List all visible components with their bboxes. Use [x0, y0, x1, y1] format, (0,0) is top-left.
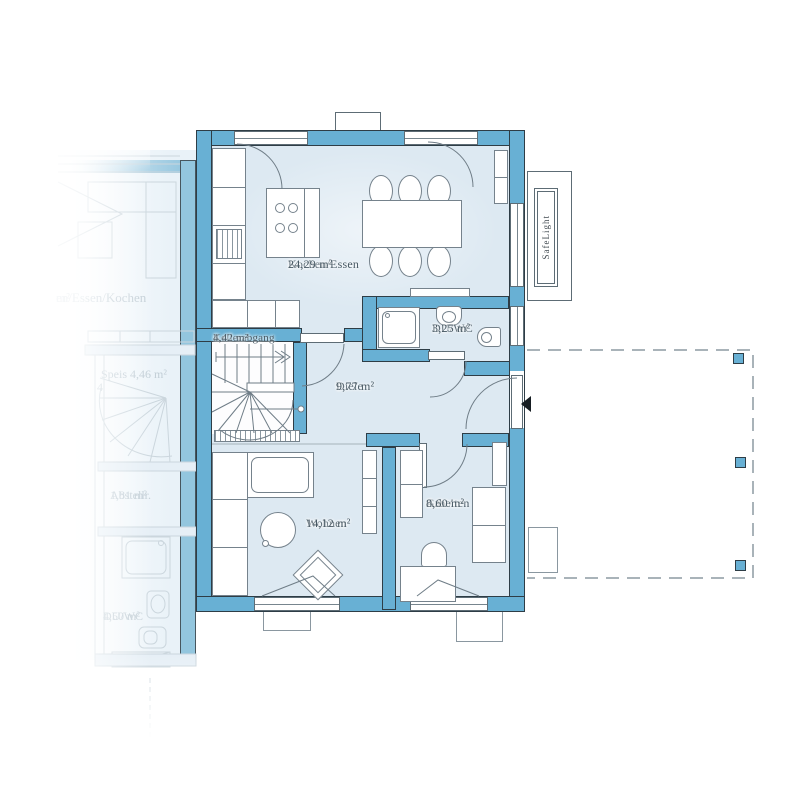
wall-kitchen-connector	[344, 328, 364, 342]
cooktop-burner	[288, 223, 298, 233]
kitchen-tall-cabinet	[494, 150, 508, 204]
sofa-cushion	[251, 457, 309, 493]
cooktop-burner	[275, 203, 285, 213]
kitchen-sideboard	[410, 288, 470, 297]
terrace-post	[735, 560, 746, 571]
coffee-table-detail	[262, 540, 269, 547]
fade-overlay-bottom-left	[0, 655, 198, 775]
cooktop-burner	[288, 203, 298, 213]
wardrobe-divider	[401, 484, 422, 485]
wall-wohnen-gast-divider	[382, 447, 396, 610]
door-leaf-kitchen	[300, 333, 344, 343]
exterior-unit	[528, 527, 558, 573]
wall-duwc-bottom	[362, 349, 430, 362]
cooktop-burner	[275, 223, 285, 233]
counter-divider	[275, 301, 276, 327]
door-leaf-duwc	[428, 351, 465, 360]
daybed-divider	[473, 525, 505, 526]
window-kitchen	[234, 131, 308, 145]
fade-overlay-left	[0, 118, 152, 680]
toilet	[477, 327, 501, 347]
armchair	[421, 542, 447, 567]
wall-gast-top-left	[366, 433, 420, 447]
toilet-bowl	[481, 332, 492, 343]
island-divider	[304, 189, 305, 257]
terrace-post	[735, 457, 746, 468]
kitchen-appliance	[216, 229, 242, 259]
counter-divider	[213, 225, 245, 226]
media-shelf	[362, 450, 377, 534]
counter-divider	[247, 301, 248, 327]
wall-entry-alcove	[464, 361, 510, 376]
dining-chair	[398, 245, 422, 277]
cabinet-divider	[495, 177, 507, 178]
sofa-divider	[213, 499, 247, 500]
shelf-divider	[363, 478, 376, 479]
sofa-divider	[213, 547, 247, 548]
dining-table	[362, 200, 462, 248]
party-wall-main-side	[196, 130, 212, 612]
wall-stair-right	[293, 342, 307, 434]
shelf-divider	[363, 506, 376, 507]
kitchen-island	[266, 188, 320, 258]
counter-divider	[213, 187, 245, 188]
sofa-body	[212, 452, 248, 596]
floor-plan: en/Essen/Kochen m² Speis 4,46 m² 4 Abste…	[0, 0, 800, 800]
wardrobe	[400, 450, 423, 518]
stair-room-fill	[212, 342, 293, 434]
window-duwc	[510, 306, 524, 346]
kitchen-counter-left	[212, 148, 246, 300]
shower	[378, 307, 420, 348]
shower-drain	[385, 313, 390, 318]
window-wohnen	[254, 597, 340, 611]
door-leaf-entry	[511, 375, 523, 429]
counter-divider	[213, 263, 245, 264]
gast-shelf	[492, 442, 507, 486]
desk	[400, 566, 456, 602]
party-wall-neighbor-side	[180, 160, 196, 660]
safelight-label-frame: SafeLight	[537, 191, 555, 284]
window-sill-wohnen	[263, 611, 311, 631]
window-sill-gast	[456, 611, 503, 642]
hall-sideboard	[214, 430, 300, 442]
daybed	[472, 487, 506, 563]
dining-chair	[427, 245, 451, 277]
safelight-box: SafeLight	[534, 188, 558, 287]
sliding-door-terrace	[510, 203, 524, 287]
safelight-label: SafeLight	[541, 215, 551, 260]
fade-overlay-top-left	[0, 118, 150, 170]
kitchen-counter-bottom	[212, 300, 300, 328]
dining-chair	[369, 245, 393, 277]
window-dining	[404, 131, 478, 145]
terrace-post	[733, 353, 744, 364]
